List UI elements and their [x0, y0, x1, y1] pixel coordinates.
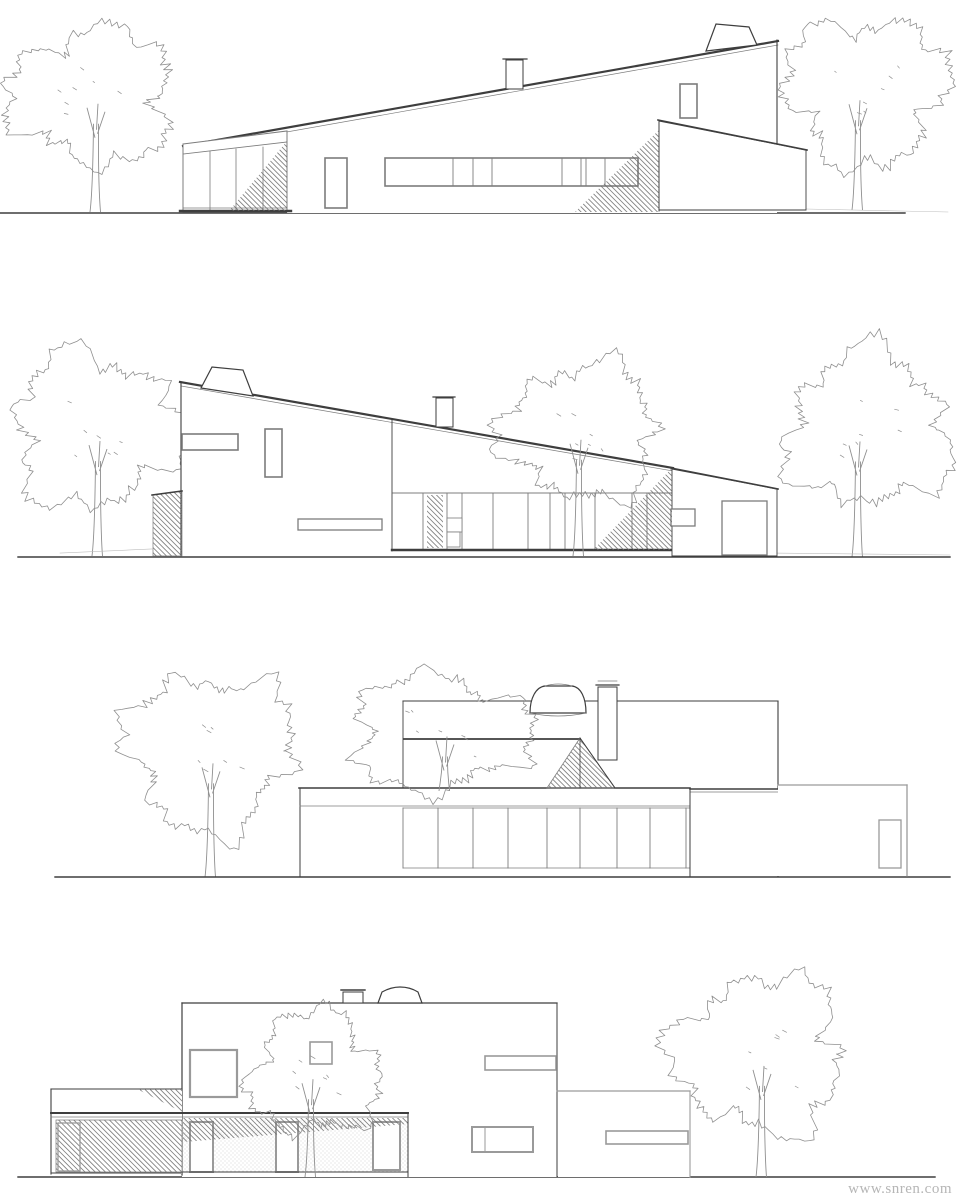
strip-window	[182, 434, 238, 450]
tree-trunk	[89, 441, 107, 556]
elevation-side-left	[55, 664, 950, 877]
tree-foliage-marks	[58, 67, 122, 114]
window	[325, 158, 347, 208]
watermark: www.snren.com	[848, 1181, 952, 1198]
tree-foliage-marks	[746, 1030, 798, 1090]
door	[879, 820, 901, 868]
tree	[114, 672, 303, 877]
ground-contour	[806, 209, 948, 212]
tree-foliage-marks	[834, 66, 899, 115]
tree-foliage-marks	[68, 401, 123, 457]
tree-canopy	[10, 339, 194, 513]
strip-window	[472, 1127, 533, 1152]
glass-panel	[373, 1122, 400, 1170]
strip-window	[606, 1131, 688, 1144]
elevation-side-right	[18, 967, 935, 1177]
window	[671, 509, 695, 526]
spandrel-panel	[447, 518, 462, 532]
window	[680, 84, 697, 118]
tree-trunk	[849, 100, 867, 210]
chimney	[506, 60, 523, 89]
door	[722, 501, 767, 555]
chimney	[436, 398, 453, 427]
window	[265, 429, 282, 477]
elevation-drawing-sheet: www.snren.com	[0, 0, 960, 1200]
tree-canopy	[1, 18, 174, 174]
strip-window	[485, 1056, 556, 1070]
chimney	[343, 992, 363, 1003]
tree-canopy	[778, 329, 956, 508]
ground-contour	[60, 549, 152, 553]
roof-vent	[530, 686, 586, 713]
hatch-shadow	[427, 495, 443, 548]
tree-canopy	[114, 672, 303, 850]
strip-window	[385, 158, 638, 186]
main-wall	[181, 382, 672, 556]
elevation-rear	[10, 329, 956, 557]
strip-window	[298, 519, 382, 530]
window	[310, 1042, 332, 1064]
spandrel-panel	[447, 532, 460, 547]
tree-foliage-marks	[198, 725, 245, 772]
chimney	[598, 687, 617, 760]
tree-trunk	[753, 1066, 771, 1177]
hatched-wall	[56, 1120, 182, 1172]
hatched-end-wall	[153, 491, 182, 556]
tree-trunk	[202, 763, 220, 877]
mid-volume	[690, 789, 778, 876]
tree-trunk	[87, 104, 105, 212]
tree	[778, 329, 956, 557]
window	[190, 1050, 237, 1097]
drawing-canvas	[0, 0, 960, 1200]
roof-vent	[378, 987, 422, 1003]
lower-volume	[300, 788, 690, 876]
elevation-front	[0, 18, 956, 213]
tree	[1, 18, 174, 212]
tree-foliage-marks	[840, 400, 902, 457]
